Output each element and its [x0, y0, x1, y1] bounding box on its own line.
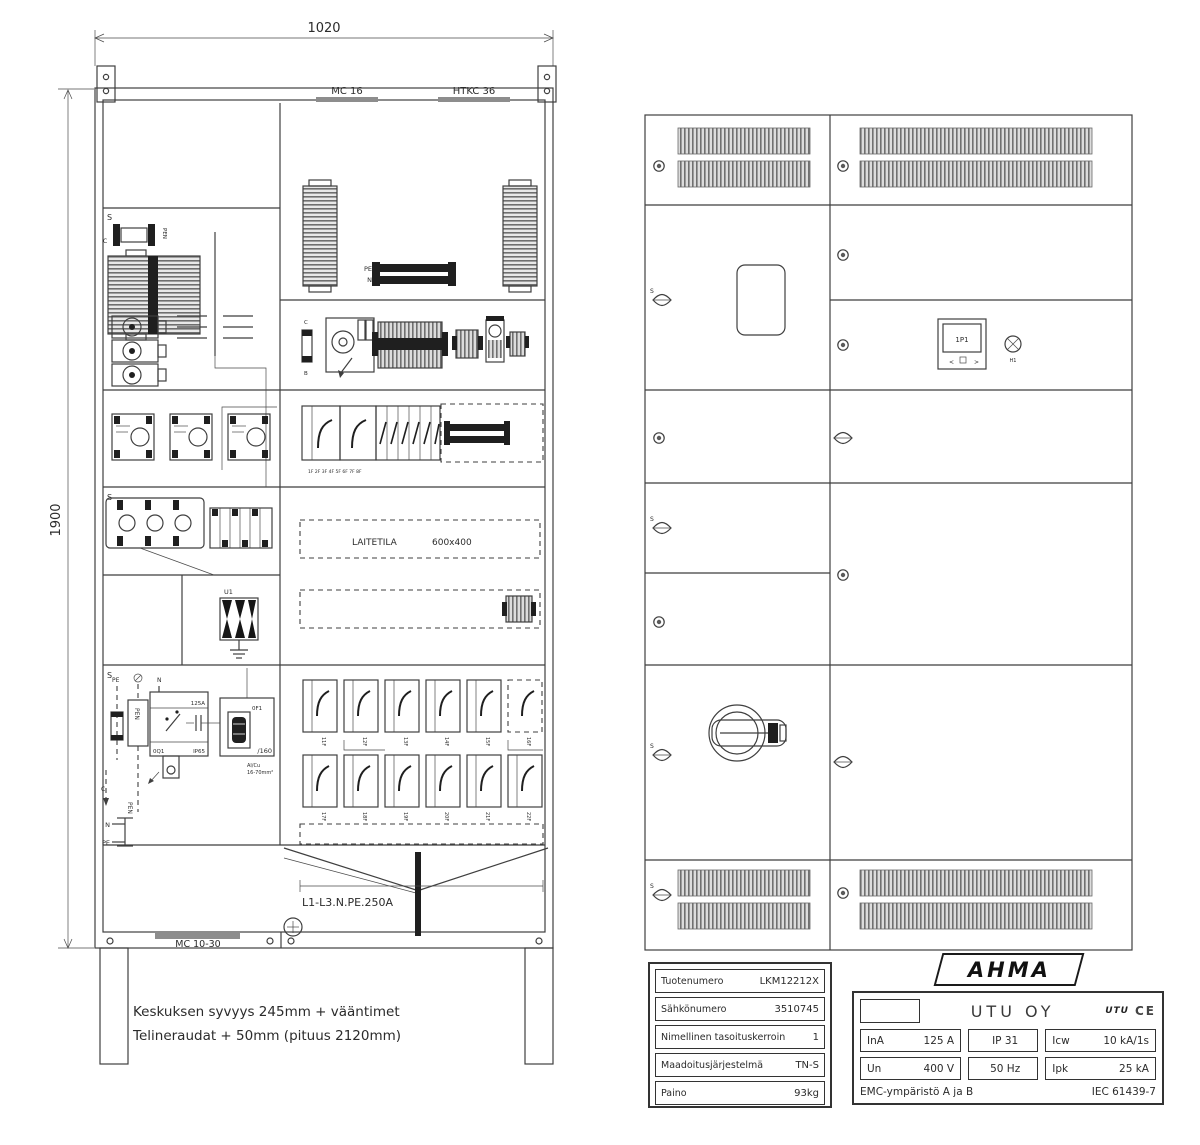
- label-fuse-id: 0F1: [252, 706, 262, 712]
- breaker-row1: 11F 12F 13F 14F 15F 16F: [303, 680, 543, 750]
- dim-height-label: 1900: [49, 503, 64, 536]
- company-name: UTU OY: [920, 1002, 1105, 1021]
- cabinet-front-view: S S S S 1P1 < > H1: [645, 115, 1132, 950]
- rating-key: Ipk: [1052, 1063, 1068, 1075]
- busbar-rating-label: L1-L3.N.PE.250A: [302, 896, 394, 909]
- main-switch-0q1: 125A 0Q1 IP65: [148, 692, 208, 784]
- label-fuse-cable: Al/Cu: [247, 763, 260, 769]
- plate-footer: EMC-ympäristö A ja B IEC 61439-7: [860, 1086, 1156, 1098]
- rating-cell: IP 31: [968, 1029, 1038, 1052]
- breaker-row-top: 1F 2F 3F 4F 5F 6F 7F 8F: [302, 404, 543, 475]
- product-info-table: Tuotenumero LKM12212X Sähkönumero 351074…: [648, 962, 832, 1108]
- latch-letter: S: [650, 743, 654, 750]
- door-latches: S S S S: [650, 288, 852, 901]
- drawing-notes: Keskuksen syvyys 245mm + vääntimet Telin…: [132, 1004, 401, 1044]
- info-value: 93kg: [794, 1088, 819, 1099]
- label-pe: PE: [364, 265, 372, 273]
- switch-row: C B: [302, 316, 529, 378]
- info-row: Paino 93kg: [655, 1081, 825, 1105]
- label-fuse-cable: 16-70mm²: [247, 770, 273, 776]
- rating-cell: InA 125 A: [860, 1029, 961, 1052]
- lamp-id-label: H1: [1010, 358, 1017, 364]
- busbar-right: [503, 186, 537, 286]
- rating-value: 10 kA/1s: [1103, 1035, 1149, 1047]
- label-c: C: [101, 786, 105, 793]
- label-pe: PE: [112, 677, 120, 684]
- note-line-2: Telineraudat + 50mm (pituus 2120mm): [132, 1028, 401, 1044]
- plate-blank-field: [860, 999, 920, 1023]
- dim-width-label: 1020: [307, 21, 340, 36]
- filter-u1: U1: [220, 588, 258, 658]
- plate-header: UTU OY UTU CE: [860, 998, 1156, 1024]
- breaker-label: 18F: [361, 812, 367, 821]
- label-c: C: [103, 238, 107, 245]
- breaker-label: 13F: [402, 737, 408, 746]
- latch-letter: S: [650, 883, 654, 890]
- fuse-unit-0f1: 0F1 /160 Al/Cu 16-70mm²: [208, 668, 274, 776]
- label-switch-id: 0Q1: [153, 749, 164, 755]
- info-label: Nimellinen tasoituskerroin: [661, 1032, 785, 1043]
- screw-icon: [838, 161, 848, 171]
- breaker-label: 20F: [443, 812, 449, 821]
- latch-icon: [834, 757, 852, 768]
- latch-icon: [653, 890, 671, 901]
- indicator-lamp-icon: [1005, 336, 1021, 352]
- rail-label-mc16: MC 16: [331, 86, 363, 97]
- rail-label-mc1030: MC 10-30: [175, 939, 220, 950]
- info-row: Maadoitusjärjestelmä TN-S: [655, 1053, 825, 1077]
- label-n: N: [157, 677, 162, 684]
- rating-row: InA 125 A IP 31 Icw 10 kA/1s: [860, 1029, 1156, 1052]
- section-incoming: S C PEN: [103, 213, 266, 487]
- section-letter: S: [107, 213, 112, 222]
- screw-icon: [838, 340, 848, 350]
- rating-value: 50 Hz: [990, 1063, 1020, 1075]
- breaker-label: 12F: [361, 737, 367, 746]
- meter-panel: 1P1 < > H1: [938, 319, 1021, 369]
- label-pen: PEN: [126, 802, 133, 814]
- screw-icon: [838, 888, 848, 898]
- label-pe: PE: [102, 839, 110, 847]
- rating-value: 25 kA: [1119, 1063, 1149, 1075]
- latch-letter: S: [650, 516, 654, 523]
- breaker-label: 11F: [320, 737, 326, 746]
- standard-label: IEC 61439-7: [1092, 1086, 1156, 1098]
- info-label: Maadoitusjärjestelmä: [661, 1060, 763, 1071]
- breaker-top-labels: 1F 2F 3F 4F 5F 6F 7F 8F: [308, 469, 362, 475]
- info-row: Nimellinen tasoituskerroin 1: [655, 1025, 825, 1049]
- label-b: B: [304, 371, 308, 377]
- dimension-width: 1020: [95, 21, 553, 66]
- rating-value: IP 31: [992, 1035, 1018, 1047]
- label-n: N: [367, 276, 372, 284]
- rating-key: InA: [867, 1035, 884, 1047]
- rating-cell: Ipk 25 kA: [1045, 1057, 1156, 1080]
- rating-value: 400 V: [924, 1063, 955, 1075]
- changeover-switch: [326, 318, 374, 372]
- fuse-holder-row: [112, 407, 277, 470]
- screw-icon: [654, 617, 664, 627]
- latch-icon: [653, 295, 671, 306]
- screw-icon: [838, 250, 848, 260]
- cabinet-internal-view: 1020 1900 MC 16 HTKC 36: [49, 21, 556, 1064]
- label-c: C: [304, 320, 308, 326]
- door-screws: [654, 161, 848, 898]
- fuse-holder: [112, 414, 154, 460]
- note-line-1: Keskuksen syvyys 245mm + vääntimet: [133, 1004, 400, 1020]
- label-u1: U1: [224, 588, 233, 596]
- device-space: LAITETILA 600x400: [300, 520, 540, 628]
- busbar-left: [303, 186, 337, 286]
- fuse-holder: [228, 414, 270, 460]
- brand-logo-box: AHMA: [934, 953, 1085, 986]
- meter-id-label: 1P1: [955, 336, 968, 344]
- section-metering: S: [106, 493, 272, 575]
- breaker-label: 22F: [525, 812, 531, 821]
- info-value: TN-S: [795, 1060, 819, 1071]
- section-main-switch: S PE N PEN 125A 0Q1 IP65: [101, 668, 274, 847]
- latch-icon: [834, 433, 852, 444]
- label-fuse-size: /160: [257, 747, 272, 755]
- label-laitetila: LAITETILA: [352, 538, 398, 548]
- breaker-label: 14F: [443, 737, 449, 746]
- breaker-label: 19F: [402, 812, 408, 821]
- latch-letter: S: [650, 288, 654, 295]
- ce-mark-icon: CE: [1135, 1004, 1156, 1018]
- outgoing-breakers: 11F 12F 13F 14F 15F 16F: [300, 680, 543, 844]
- fuse-holder: [170, 414, 212, 460]
- main-switch-handle: [709, 705, 786, 761]
- cable-funnel: L1-L3.N.PE.250A: [284, 848, 548, 936]
- rating-cell: 50 Hz: [968, 1057, 1038, 1080]
- rating-key: Un: [867, 1063, 881, 1075]
- cabinet-leg-right: [525, 948, 553, 1064]
- screw-icon: [654, 161, 664, 171]
- breaker-label: 16F: [525, 737, 531, 746]
- breaker-row2: 17F 18F 19F 20F 21F 22F: [303, 755, 542, 821]
- latch-icon: [653, 750, 671, 761]
- rating-key: Icw: [1052, 1035, 1069, 1047]
- meter-button-left: <: [949, 359, 954, 366]
- door-window: [737, 265, 785, 335]
- info-label: Sähkönumero: [661, 1004, 727, 1015]
- breaker-label: 17F: [320, 812, 326, 821]
- rating-cell: Icw 10 kA/1s: [1045, 1029, 1156, 1052]
- rail-label-htkc36: HTKC 36: [453, 86, 496, 97]
- breaker-label: 15F: [484, 737, 490, 746]
- rating-cell: Un 400 V: [860, 1057, 961, 1080]
- label-switch-amp: 125A: [191, 701, 205, 707]
- utu-logo-icon: UTU: [1105, 1006, 1129, 1016]
- rating-row: Un 400 V 50 Hz Ipk 25 kA: [860, 1057, 1156, 1080]
- info-value: 1: [813, 1032, 819, 1043]
- dimension-height: 1900: [49, 89, 94, 948]
- label-n: N: [105, 821, 110, 829]
- ventilation-grilles: [678, 128, 1092, 929]
- label-pen: PEN: [133, 708, 140, 720]
- screw-icon: [838, 570, 848, 580]
- breaker-label: 21F: [484, 812, 490, 821]
- info-row: Tuotenumero LKM12212X: [655, 969, 825, 993]
- emc-label: EMC-ympäristö A ja B: [860, 1086, 973, 1098]
- rating-plate: UTU OY UTU CE InA 125 A IP 31 Icw 10 kA/…: [852, 991, 1164, 1105]
- latch-icon: [653, 523, 671, 534]
- info-label: Tuotenumero: [661, 976, 723, 987]
- label-pen: PEN: [161, 228, 167, 239]
- meter-button-right: >: [974, 359, 979, 366]
- rating-value: 125 A: [924, 1035, 955, 1047]
- info-value: LKM12212X: [760, 976, 819, 987]
- busbar-section: PE N: [303, 180, 537, 292]
- info-value: 3510745: [774, 1004, 819, 1015]
- cabinet-leg-left: [100, 948, 128, 1064]
- screw-icon: [654, 433, 664, 443]
- brand-name: AHMA: [968, 958, 1051, 982]
- label-laitetila-size: 600x400: [432, 538, 472, 548]
- info-label: Paino: [661, 1088, 687, 1099]
- label-switch-ip: IP65: [193, 749, 205, 755]
- info-row: Sähkönumero 3510745: [655, 997, 825, 1021]
